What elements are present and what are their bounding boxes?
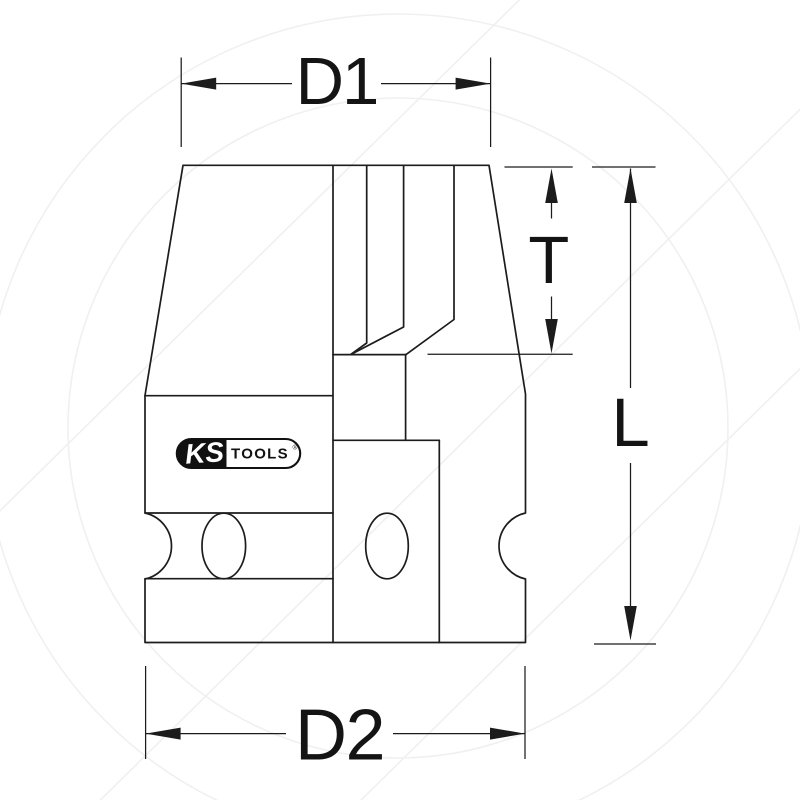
svg-text:L: L: [611, 384, 649, 461]
svg-text:T: T: [528, 223, 569, 298]
svg-text:KS: KS: [184, 436, 225, 470]
svg-text:D1: D1: [296, 44, 378, 119]
svg-text:®: ®: [293, 444, 298, 452]
svg-text:TOOLS: TOOLS: [231, 445, 289, 462]
svg-text:D2: D2: [295, 696, 384, 776]
